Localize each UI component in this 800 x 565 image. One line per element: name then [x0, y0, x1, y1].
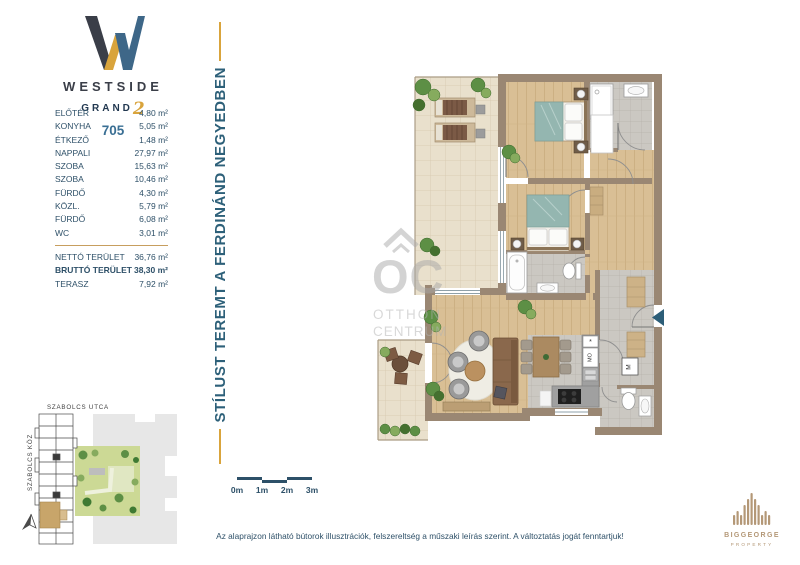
scale-segment	[237, 477, 262, 480]
floor-plan: * MO M	[355, 55, 670, 455]
dining-set	[521, 337, 571, 377]
room-area: 5,79 m²	[139, 200, 168, 213]
scale-label: 2m	[281, 485, 293, 495]
room-row: SZOBA10,46 m²	[55, 173, 168, 186]
room-area: 5,05 m²	[139, 120, 168, 133]
room-area: 36,76 m²	[134, 251, 168, 264]
fridge-label: *	[589, 339, 592, 346]
room-list: ELŐTÉR4,80 m²KONYHA5,05 m²ÉTKEZŐ1,48 m²N…	[55, 107, 168, 240]
watermark-line2: CENTRUM	[373, 324, 448, 339]
scale-segment	[287, 477, 312, 480]
room-row: KONYHA5,05 m²	[55, 120, 168, 133]
totals-list: NETTÓ TERÜLET36,76 m²BRUTTÓ TERÜLET38,30…	[55, 245, 168, 291]
shaft-label: M	[626, 364, 633, 369]
room-area: 7,92 m²	[139, 278, 168, 291]
room-row: NAPPALI27,97 m²	[55, 147, 168, 160]
room-area: 1,48 m²	[139, 134, 168, 147]
compass-north-icon	[22, 514, 36, 530]
street-label-left: SZABOLCS KÖZ	[27, 434, 34, 491]
room-label: SZOBA	[55, 173, 84, 186]
developer-subtitle: PROPERTY	[731, 542, 774, 547]
room-area: 4,80 m²	[139, 107, 168, 120]
room-label: KÖZL.	[55, 200, 80, 213]
room-label: NETTÓ TERÜLET	[55, 251, 125, 264]
scale-segment	[262, 480, 287, 483]
room-label: ELŐTÉR	[55, 107, 89, 120]
scale-label: 1m	[256, 485, 268, 495]
biggeorge-building-icon	[733, 493, 770, 525]
room-label: SZOBA	[55, 160, 84, 173]
room-label: FÜRDŐ	[55, 213, 85, 226]
watermark-line1: OTTHON	[373, 307, 442, 322]
room-area: 15,63 m²	[134, 160, 168, 173]
room-row: KÖZL.5,79 m²	[55, 200, 168, 213]
room-area: 6,08 m²	[139, 213, 168, 226]
room-area: 10,46 m²	[134, 173, 168, 186]
gold-line-bottom	[219, 429, 221, 464]
room-area: 4,30 m²	[139, 187, 168, 200]
tagline-column: STÍLUST TEREMT A FERDINÁND NEGYEDBEN	[204, 22, 236, 464]
site-map: SZABOLCS UTCA SZABOLCS KÖZ	[15, 398, 187, 550]
room-row: FÜRDŐ6,08 m²	[55, 213, 168, 226]
room-row: ELŐTÉR4,80 m²	[55, 107, 168, 120]
room-label: ÉTKEZŐ	[55, 134, 89, 147]
gold-line-top	[219, 22, 221, 61]
biggeorge-logo: BIGGEORGE PROPERTY	[706, 483, 798, 561]
room-label: TERASZ	[55, 278, 89, 291]
scale-bar: 0m 1m 2m 3m	[228, 471, 338, 499]
room-label: BRUTTÓ TERÜLET	[55, 264, 132, 277]
room-row: NETTÓ TERÜLET36,76 m²	[55, 251, 168, 264]
room-area: 38,30 m²	[134, 264, 168, 277]
street-label-top: SZABOLCS UTCA	[47, 404, 109, 411]
room-row: SZOBA15,63 m²	[55, 160, 168, 173]
site-map-courtyard	[75, 446, 140, 516]
watermark-initials: OC	[372, 250, 445, 303]
developer-name: BIGGEORGE	[724, 532, 780, 539]
room-label: WC	[55, 227, 69, 240]
scale-label: 3m	[306, 485, 318, 495]
room-area-table: ELŐTÉR4,80 m²KONYHA5,05 m²ÉTKEZŐ1,48 m²N…	[55, 107, 168, 291]
room-row: TERASZ7,92 m²	[55, 278, 168, 291]
room-area: 3,01 m²	[139, 227, 168, 240]
room-label: FÜRDŐ	[55, 187, 85, 200]
room-row: FÜRDŐ4,30 m²	[55, 187, 168, 200]
room-row: ÉTKEZŐ1,48 m²	[55, 134, 168, 147]
room-row: WC3,01 m²	[55, 227, 168, 240]
room-label: KONYHA	[55, 120, 91, 133]
washer-label: MO	[588, 352, 594, 362]
disclaimer: Az alaprajzon látható bútorok illusztrác…	[170, 531, 670, 541]
brand-name: WESTSIDE	[40, 79, 186, 94]
tagline: STÍLUST TEREMT A FERDINÁND NEGYEDBEN	[212, 67, 229, 423]
room-label: NAPPALI	[55, 147, 90, 160]
westside-w-logo-icon	[81, 16, 145, 70]
scale-label: 0m	[231, 485, 243, 495]
room-area: 27,97 m²	[134, 147, 168, 160]
room-row: BRUTTÓ TERÜLET38,30 m²	[55, 264, 168, 277]
